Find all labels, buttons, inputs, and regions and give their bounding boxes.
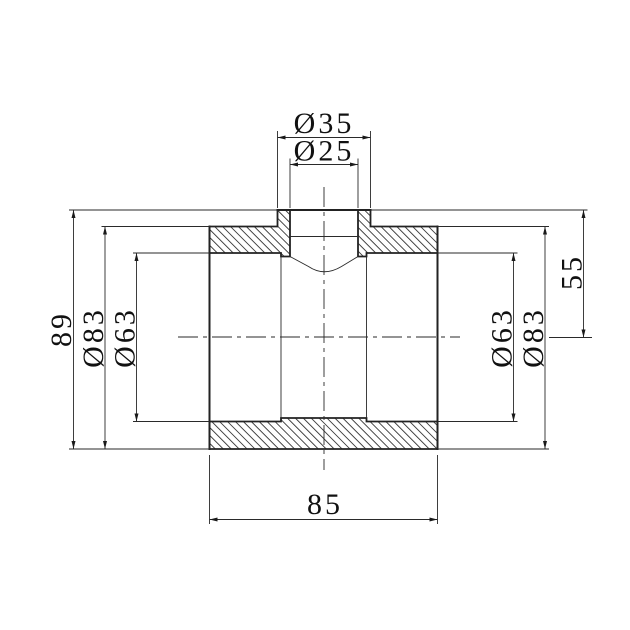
cut-wall-top-right <box>358 210 438 257</box>
dim-label-socket-inner-left: Ø63 <box>109 307 142 368</box>
dim-label-branch-top-to-axis: 55 <box>556 254 589 290</box>
drawing-canvas: Ø35 Ø25 89 Ø83 Ø63 Ø63 Ø83 55 85 <box>0 0 630 630</box>
dim-label-socket-inner-right: Ø63 <box>486 307 519 368</box>
fitting-section-view <box>178 187 460 470</box>
technical-drawing-tee-fitting: Ø35 Ø25 89 Ø83 Ø63 Ø63 Ø83 55 85 <box>0 0 630 630</box>
cut-wall-top-left <box>210 210 291 257</box>
dim-label-overall-height: 89 <box>45 311 78 347</box>
dim-label-branch-inner-diameter: Ø25 <box>294 135 355 168</box>
dimension-labels: Ø35 Ø25 89 Ø83 Ø63 Ø63 Ø83 55 85 <box>45 107 589 521</box>
dim-label-body-length: 85 <box>307 488 343 521</box>
dim-label-body-outer-right: Ø83 <box>517 307 550 368</box>
cut-wall-bottom <box>210 418 438 449</box>
dim-label-body-outer-left: Ø83 <box>77 307 110 368</box>
